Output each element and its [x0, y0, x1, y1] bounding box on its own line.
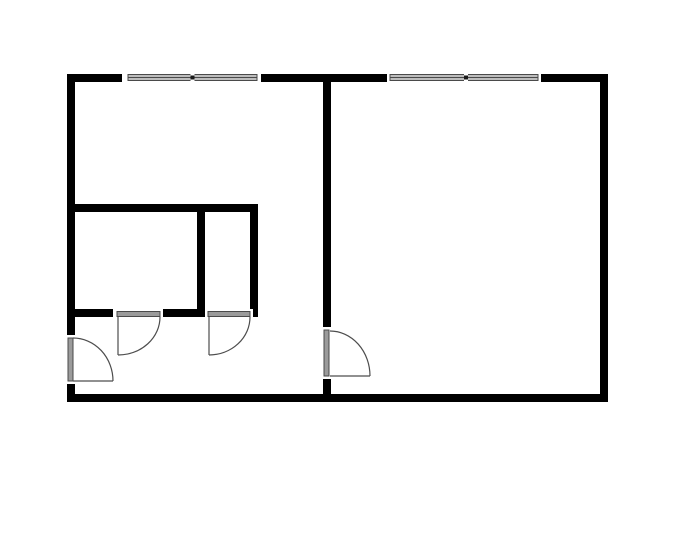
right-room-door-panel	[208, 312, 250, 317]
interior-wall-lower-left-segment	[67, 309, 113, 317]
interior-wall-lower-right-segment	[163, 309, 205, 317]
floor-plan-canvas	[0, 0, 700, 550]
outer-wall-right	[600, 74, 608, 402]
window-1-mullion	[191, 76, 195, 80]
interior-wall-right-vertical	[250, 204, 258, 317]
divider-door-panel	[324, 330, 329, 376]
page-background	[0, 0, 700, 550]
entry-door-panel	[68, 338, 73, 381]
floor-plan-page	[0, 0, 700, 550]
outer-wall-bottom	[67, 394, 608, 402]
window-2-mullion	[464, 76, 468, 80]
left-room-door-panel	[117, 312, 160, 317]
interior-wall-middle-vertical	[197, 212, 205, 317]
interior-wall-upper-horizontal	[67, 204, 258, 212]
